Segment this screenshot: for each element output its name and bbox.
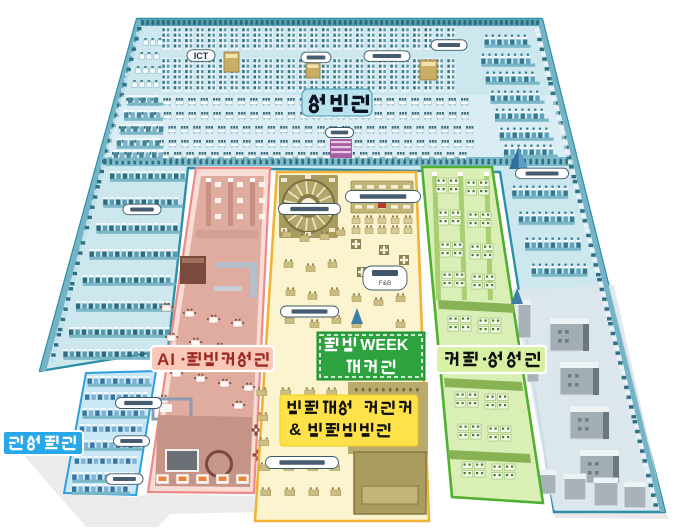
svg-text:ICT: ICT — [194, 51, 209, 61]
svg-text:I: I — [170, 350, 175, 369]
svg-text:WEEK: WEEK — [360, 337, 408, 354]
svg-text:A: A — [157, 350, 169, 369]
svg-text:F&B: F&B — [379, 280, 391, 287]
svg-text:&: & — [289, 420, 301, 439]
